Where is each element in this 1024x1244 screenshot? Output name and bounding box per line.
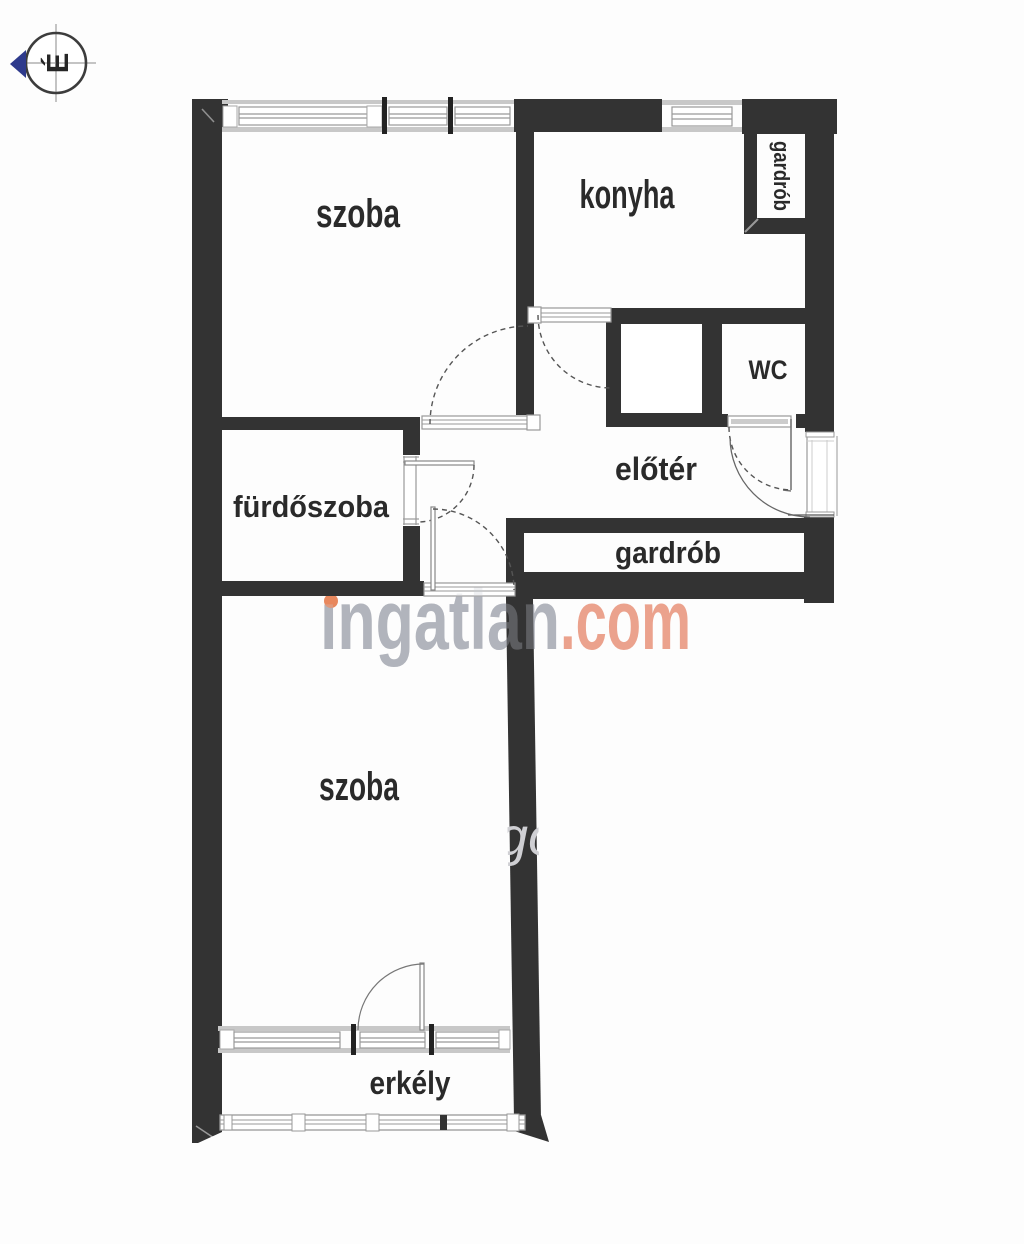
svg-text:előtér: előtér [615, 451, 697, 487]
svg-text:fürdőszoba: fürdőszoba [233, 489, 390, 524]
svg-text:ıngatlan: ıngatlan [320, 573, 560, 667]
svg-text:WC: WC [749, 355, 788, 385]
svg-text:gardrób: gardrób [769, 141, 794, 211]
svg-text:É: É [40, 53, 75, 74]
svg-text:szoba: szoba [319, 765, 400, 809]
svg-text:erkély: erkély [370, 1065, 451, 1101]
svg-text:gardrób: gardrób [615, 535, 721, 570]
svg-text:szoba: szoba [316, 192, 401, 236]
svg-text:konyha: konyha [580, 173, 676, 217]
